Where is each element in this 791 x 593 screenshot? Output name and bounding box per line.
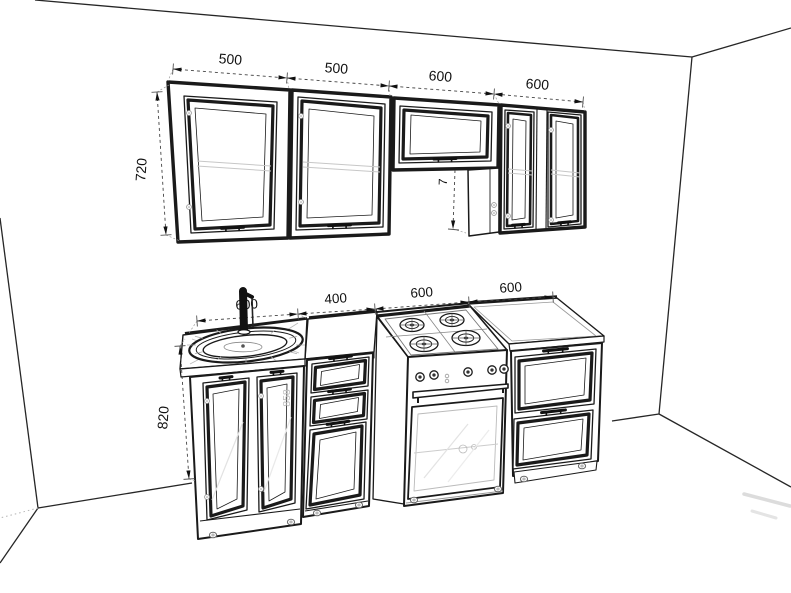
base-unit-drawers-400 <box>303 311 377 517</box>
dim-upper-width-4: 600 <box>525 75 550 93</box>
sink-unit-600 <box>180 319 307 539</box>
door-watermark: 858 <box>281 389 293 407</box>
kitchen-drawing-canvas: 500 500 600 600 720 7 600 400 600 600 82… <box>0 0 791 593</box>
dim-lower-width-2: 400 <box>324 290 348 307</box>
floor-shadow <box>744 494 790 518</box>
dim-partial-height: 7 <box>436 178 450 185</box>
wall-cabinet-side-panel <box>468 168 499 236</box>
dim-upper-width-2: 500 <box>324 59 349 77</box>
oven-front <box>404 350 508 506</box>
dim-lower-height: 820 <box>154 405 172 430</box>
wall-cabinets <box>168 82 585 242</box>
stove-unit-600 <box>373 303 508 506</box>
dim-upper-width-1: 500 <box>218 50 243 68</box>
dim-lower-width-4: 600 <box>499 279 523 296</box>
wall-cabinet-600-flip-up <box>393 98 499 170</box>
drawing-stage: 500 500 600 600 720 7 600 400 600 600 82… <box>0 0 791 593</box>
wall-cabinet-500-glass-1 <box>168 82 290 242</box>
dim-upper-width-3: 600 <box>428 67 453 85</box>
dim-lower-width-3: 600 <box>410 284 434 301</box>
dim-upper-height: 720 <box>132 157 150 182</box>
